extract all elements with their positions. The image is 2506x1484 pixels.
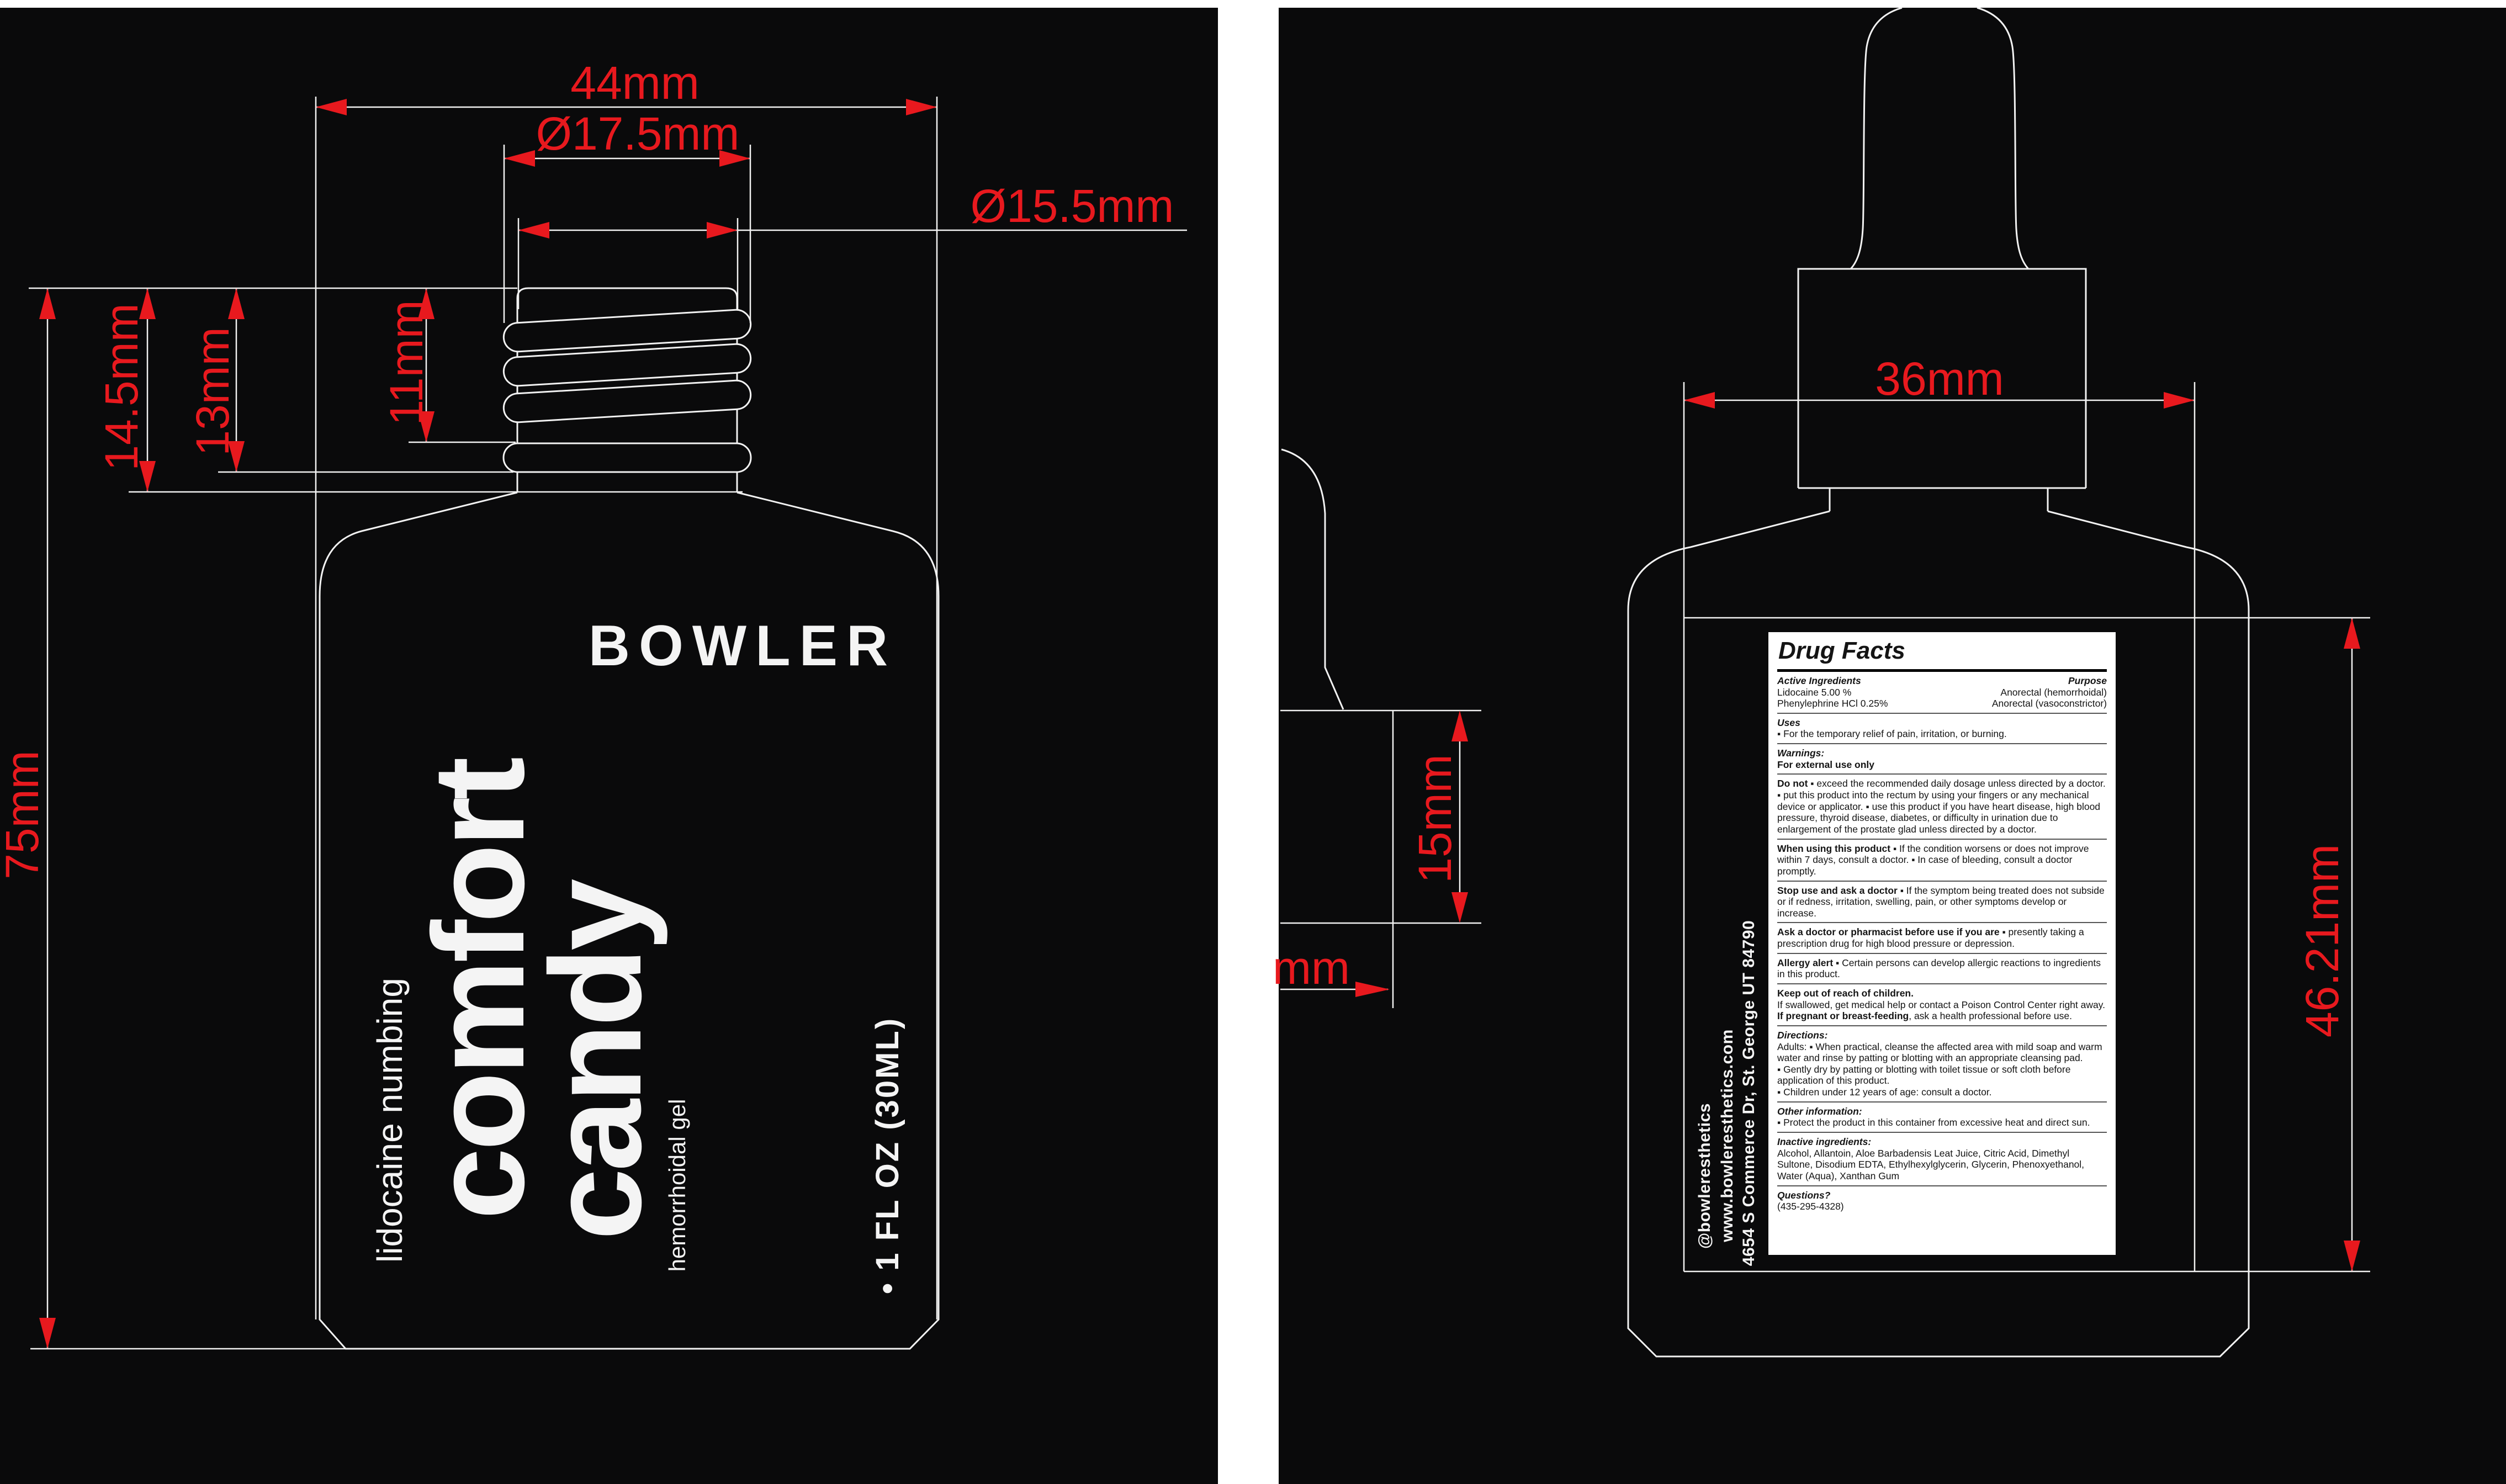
- dim-label-collar-height: 13mm: [188, 309, 237, 474]
- stop-use-lead: Stop use and ask a doctor: [1777, 885, 1898, 896]
- product-type: hemorrhoidal gel: [664, 1105, 691, 1265]
- cap-base-ring: [504, 443, 751, 472]
- dim-arrow: [39, 1318, 56, 1349]
- keep-out-heading: Keep out of reach of children.: [1777, 988, 2107, 999]
- company-social: @bowleresthetics: [1696, 1100, 1714, 1252]
- uses-heading: Uses: [1777, 717, 2107, 729]
- do-not-text: ▪ exceed the recommended daily dosage un…: [1777, 778, 2106, 835]
- drug-facts-title: Drug Facts: [1777, 632, 2107, 672]
- dim-arrow: [906, 99, 937, 115]
- volume-text: • 1 FL OZ (30ML): [865, 1040, 909, 1271]
- active-ingredients-heading: Active Ingredients: [1777, 675, 1861, 687]
- keep-out-text: If swallowed, get medical help or contac…: [1777, 999, 2107, 1011]
- brand-name: BOWLER: [588, 613, 897, 679]
- side-profile-outline: [1281, 449, 1343, 709]
- pregnant-text: , ask a health professional before use.: [1909, 1010, 2072, 1021]
- dim-label-side-offset: 15mm: [1410, 736, 1460, 902]
- directions-heading: Directions:: [1777, 1030, 2107, 1041]
- questions-heading: Questions?: [1777, 1190, 2107, 1201]
- active-ingredient-name: Lidocaine 5.00 %: [1777, 687, 1851, 698]
- dim-arrow: [316, 99, 347, 115]
- dim-label-face-width: 36mm: [1857, 354, 2022, 404]
- when-using-lead: When using this product: [1777, 843, 1890, 854]
- packaging-technical-drawing: { "colors": { "accent_red": "#e8191e", "…: [0, 0, 2506, 1484]
- dim-label-cap-height: 14.5mm: [97, 293, 146, 481]
- inactive-ingredients-text: Alcohol, Allantoin, Aloe Barbadensis Lea…: [1777, 1148, 2107, 1182]
- warnings-heading: Warnings:: [1777, 748, 2107, 759]
- drug-facts-label: Drug Facts Active Ingredients Purpose Li…: [1768, 632, 2116, 1255]
- dim-arrow: [1684, 392, 1715, 409]
- inactive-ingredients-section: Inactive ingredients: Alcohol, Allantoin…: [1777, 1132, 2107, 1185]
- when-using-section: When using this product ▪ If the conditi…: [1777, 839, 2107, 881]
- ask-doctor-section: Ask a doctor or pharmacist before use if…: [1777, 922, 2107, 952]
- cap-thread-rib: [503, 380, 751, 423]
- dim-label-thread-height: 11mm: [382, 280, 431, 446]
- other-information-heading: Other information:: [1777, 1106, 2107, 1117]
- dim-label-label-height: 46.21mm: [2297, 830, 2347, 1051]
- directions-bullet2: ▪ Gently dry by patting or blotting with…: [1777, 1064, 2107, 1086]
- active-ingredient-purpose: Anorectal (hemorrhoidal): [2000, 687, 2107, 698]
- allergy-section: Allergy alert ▪ Certain persons can deve…: [1777, 953, 2107, 983]
- purpose-heading: Purpose: [2068, 675, 2107, 687]
- active-ingredient-purpose: Anorectal (vasoconstrictor): [1992, 698, 2107, 709]
- dim-arrow: [518, 222, 549, 239]
- warnings-section: Warnings: For external use only: [1777, 743, 2107, 773]
- dim-arrow: [2344, 1241, 2360, 1271]
- warnings-text: For external use only: [1777, 759, 2107, 771]
- active-ingredients-section: Active Ingredients Purpose Lidocaine 5.0…: [1777, 672, 2107, 713]
- product-descriptor: lidocaine numbing: [368, 971, 412, 1269]
- ask-doctor-lead: Ask a doctor or pharmacist before use if…: [1777, 926, 2000, 937]
- company-website: www.bowleresthetics.com: [1718, 1020, 1737, 1252]
- stop-use-section: Stop use and ask a doctor ▪ If the sympt…: [1777, 881, 2107, 923]
- back-neck: [1830, 488, 2048, 511]
- dim-arrow: [707, 222, 738, 239]
- dim-arrow: [39, 288, 56, 319]
- dim-label-side-offset-cut: mm: [1273, 943, 1361, 993]
- other-information-section: Other information: ▪ Protect the product…: [1777, 1101, 2107, 1132]
- dim-label-bottle-height: 75mm: [0, 732, 47, 898]
- inactive-ingredients-heading: Inactive ingredients:: [1777, 1136, 2107, 1148]
- dropper-bulb-left: [1851, 8, 1902, 269]
- product-name-line2: candy: [526, 857, 664, 1265]
- dim-label-cap-outer-diameter: Ø17.5mm: [527, 109, 748, 158]
- directions-bullet3: ▪ Children under 12 years of age: consul…: [1777, 1086, 2107, 1098]
- dim-label-body-width: 44mm: [552, 58, 718, 108]
- keep-out-section: Keep out of reach of children. If swallo…: [1777, 983, 2107, 1025]
- pregnant-lead: If pregnant or breast-feeding: [1777, 1010, 1909, 1021]
- directions-section: Directions: Adults: ▪ When practical, cl…: [1777, 1025, 2107, 1101]
- uses-text: ▪ For the temporary relief of pain, irri…: [1777, 728, 2107, 740]
- do-not-section: Do not ▪ exceed the recommended daily do…: [1777, 773, 2107, 838]
- questions-section: Questions? (435-295-4328): [1777, 1185, 2107, 1216]
- active-ingredient-name: Phenylephrine HCl 0.25%: [1777, 698, 1888, 709]
- do-not-lead: Do not: [1777, 778, 1808, 789]
- other-information-text: ▪ Protect the product in this container …: [1777, 1117, 2107, 1128]
- dropper-bulb-right: [1977, 8, 2028, 269]
- cap-extension-lines: [518, 218, 738, 309]
- company-address: 4654 S Commerce Dr, St. George UT 84790: [1740, 935, 1758, 1252]
- allergy-lead: Allergy alert: [1777, 957, 1833, 968]
- directions-adults: Adults: ▪ When practical, cleanse the af…: [1777, 1041, 2107, 1064]
- dim-arrow: [2164, 392, 2195, 409]
- dim-arrow: [2344, 618, 2360, 649]
- uses-section: Uses ▪ For the temporary relief of pain,…: [1777, 713, 2107, 743]
- dim-label-cap-diameter: Ø15.5mm: [962, 181, 1183, 231]
- questions-phone: (435-295-4328): [1777, 1201, 2107, 1212]
